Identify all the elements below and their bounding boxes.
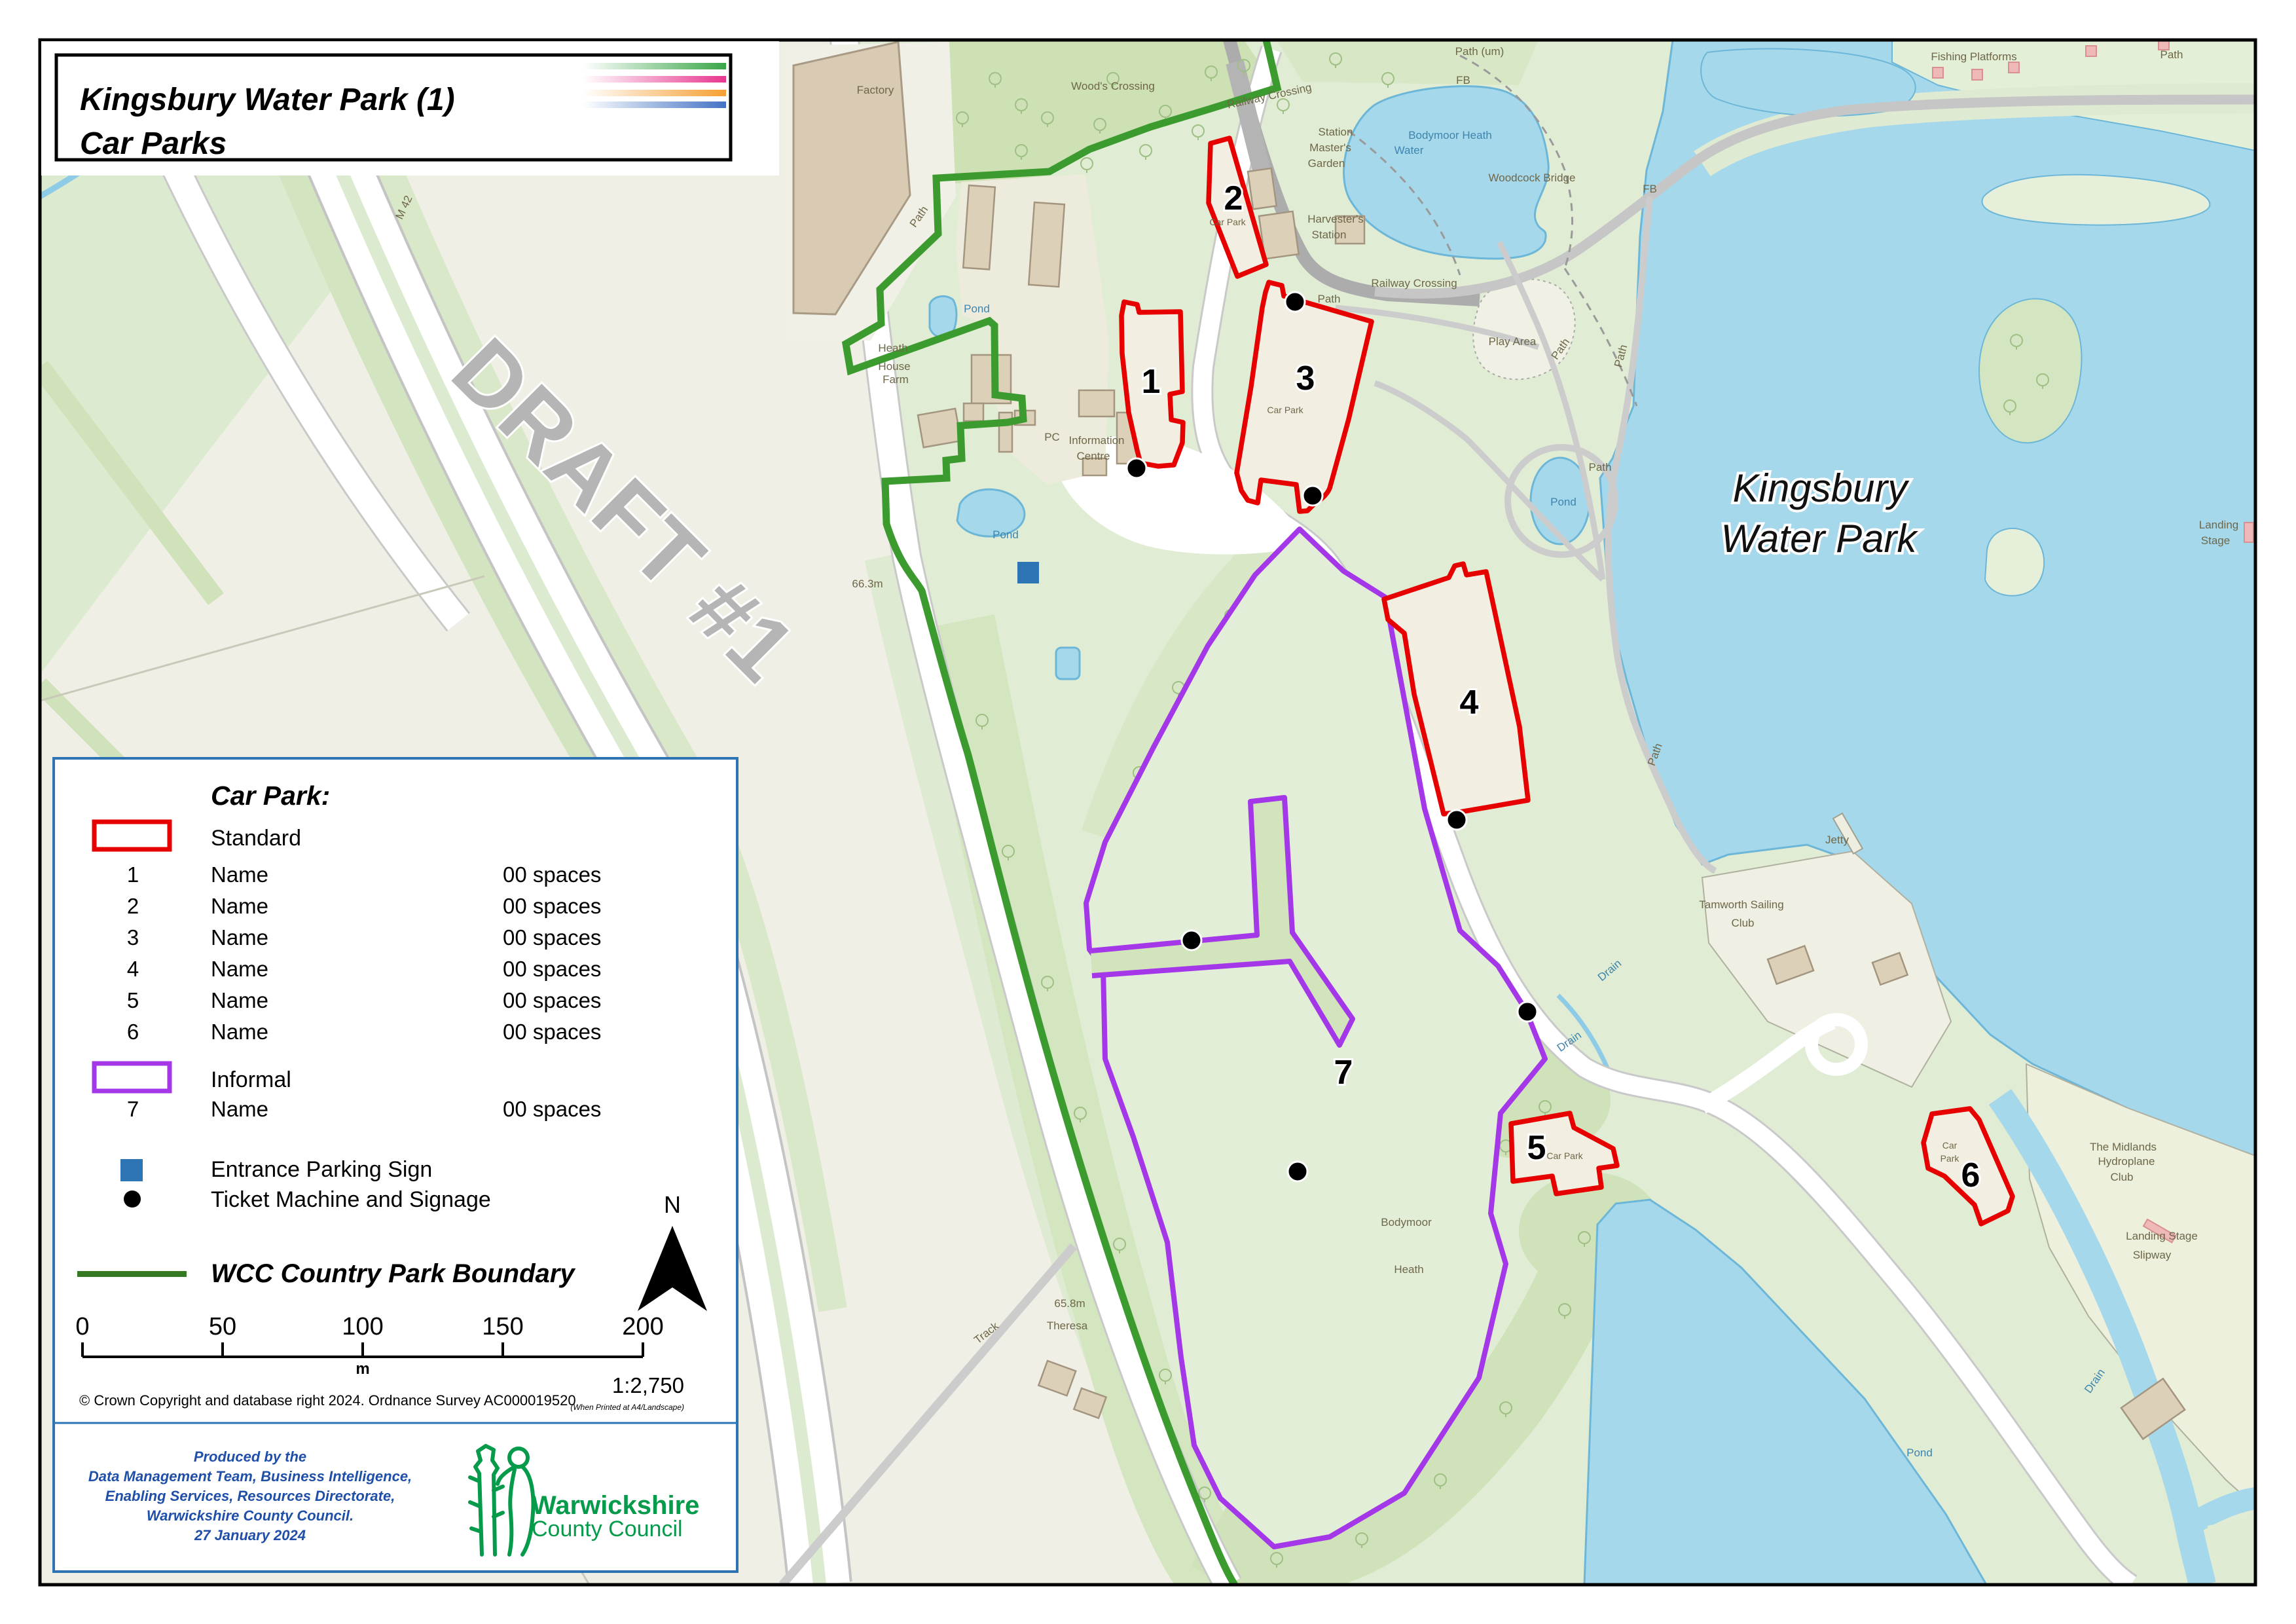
svg-text:00 spaces: 00 spaces <box>503 1020 601 1044</box>
svg-text:Railway Crossing: Railway Crossing <box>1371 277 1457 289</box>
svg-text:Fishing Platforms: Fishing Platforms <box>1931 50 2016 63</box>
svg-text:00 spaces: 00 spaces <box>503 957 601 981</box>
svg-text:00 spaces: 00 spaces <box>503 988 601 1012</box>
svg-text:Name: Name <box>211 894 268 918</box>
svg-text:Enabling Services, Resources D: Enabling Services, Resources Directorate… <box>105 1488 395 1504</box>
svg-text:5: 5 <box>127 988 139 1012</box>
svg-text:Car Park: Car Park <box>1267 405 1303 415</box>
svg-text:Play Area: Play Area <box>1489 335 1537 348</box>
svg-text:Tamworth Sailing: Tamworth Sailing <box>1699 898 1783 911</box>
svg-text:House: House <box>878 360 910 373</box>
svg-text:m: m <box>355 1360 369 1378</box>
svg-text:The Midlands: The Midlands <box>2090 1141 2157 1153</box>
svg-text:Name: Name <box>211 988 268 1012</box>
svg-text:Master's: Master's <box>1309 141 1351 154</box>
svg-text:FB: FB <box>1643 183 1657 195</box>
svg-text:Park: Park <box>1941 1153 1960 1164</box>
svg-text:200: 200 <box>622 1313 663 1340</box>
svg-text:Warwickshire: Warwickshire <box>532 1491 699 1520</box>
svg-text:(When Printed at A4/Landscape): (When Printed at A4/Landscape) <box>570 1403 684 1412</box>
svg-text:Car Parks: Car Parks <box>80 126 227 161</box>
svg-text:Jetty: Jetty <box>1825 834 1849 846</box>
svg-text:Path: Path <box>1318 293 1341 305</box>
svg-text:Heath: Heath <box>1394 1263 1423 1276</box>
svg-text:7: 7 <box>127 1097 139 1121</box>
svg-text:00 spaces: 00 spaces <box>503 925 601 950</box>
svg-text:Woodcock Bridge: Woodcock Bridge <box>1489 172 1576 184</box>
svg-text:Kingsbury: Kingsbury <box>1733 466 1910 510</box>
svg-text:00 spaces: 00 spaces <box>503 862 601 887</box>
svg-text:Pond: Pond <box>1906 1447 1933 1459</box>
svg-text:2: 2 <box>127 894 139 918</box>
svg-text:Car Park:: Car Park: <box>211 781 330 811</box>
svg-text:Car Park: Car Park <box>1546 1151 1583 1161</box>
svg-text:Warwickshire County Council.: Warwickshire County Council. <box>147 1507 354 1524</box>
svg-text:6: 6 <box>1961 1156 1980 1194</box>
svg-text:2: 2 <box>1224 179 1243 217</box>
svg-text:Club: Club <box>2111 1171 2134 1183</box>
svg-text:Path: Path <box>2160 48 2183 61</box>
svg-text:Landing: Landing <box>2199 519 2239 531</box>
svg-text:Path: Path <box>1589 461 1612 473</box>
svg-text:Kingsbury Water Park (1): Kingsbury Water Park (1) <box>80 83 455 117</box>
svg-text:Heath: Heath <box>878 342 907 354</box>
svg-text:Name: Name <box>211 957 268 981</box>
svg-text:Name: Name <box>211 925 268 950</box>
svg-text:N: N <box>664 1191 681 1218</box>
svg-text:Factory: Factory <box>857 84 894 96</box>
svg-text:Name: Name <box>211 1097 268 1121</box>
svg-text:Club: Club <box>1732 917 1755 929</box>
svg-text:Centre: Centre <box>1076 450 1110 462</box>
svg-text:PC: PC <box>1044 431 1060 443</box>
svg-text:Pond: Pond <box>964 303 990 315</box>
svg-text:Car Park: Car Park <box>1209 217 1246 227</box>
svg-text:Path (um): Path (um) <box>1455 45 1504 58</box>
svg-text:Station: Station <box>1312 229 1347 241</box>
svg-text:6: 6 <box>127 1020 139 1044</box>
svg-text:Station: Station <box>1319 126 1353 138</box>
svg-text:© Crown Copyright and database: © Crown Copyright and database right 202… <box>79 1392 576 1409</box>
svg-text:66.3m: 66.3m <box>852 578 883 590</box>
svg-text:Car: Car <box>1942 1140 1958 1151</box>
svg-text:Standard: Standard <box>211 826 301 851</box>
svg-text:00 spaces: 00 spaces <box>503 1097 601 1121</box>
svg-text:Water: Water <box>1394 144 1424 157</box>
svg-text:Water Park: Water Park <box>1721 517 1919 561</box>
svg-text:4: 4 <box>1460 684 1479 722</box>
svg-text:County Council: County Council <box>532 1517 683 1541</box>
svg-text:27 January 2024: 27 January 2024 <box>194 1527 306 1543</box>
svg-text:Name: Name <box>211 862 268 887</box>
svg-text:3: 3 <box>127 925 139 950</box>
svg-text:WCC Country Park Boundary: WCC Country Park Boundary <box>211 1259 575 1288</box>
svg-text:00 spaces: 00 spaces <box>503 894 601 918</box>
svg-text:4: 4 <box>127 957 139 981</box>
svg-text:Bodymoor Heath: Bodymoor Heath <box>1408 129 1492 141</box>
svg-text:Name: Name <box>211 1020 268 1044</box>
svg-text:Slipway: Slipway <box>2133 1249 2172 1261</box>
svg-text:Hydroplane: Hydroplane <box>2098 1155 2155 1168</box>
svg-text:Stage: Stage <box>2201 534 2230 547</box>
svg-text:Garden: Garden <box>1308 157 1345 170</box>
svg-text:0: 0 <box>75 1313 89 1340</box>
svg-text:5: 5 <box>1527 1129 1546 1167</box>
svg-text:Informal: Informal <box>211 1067 291 1092</box>
svg-text:Pond: Pond <box>1550 496 1576 508</box>
svg-text:Theresa: Theresa <box>1047 1319 1088 1332</box>
svg-text:Information: Information <box>1068 434 1124 447</box>
svg-text:Bodymoor: Bodymoor <box>1381 1216 1432 1228</box>
svg-text:3: 3 <box>1296 360 1315 397</box>
svg-text:FB: FB <box>1456 74 1470 86</box>
svg-text:150: 150 <box>482 1313 523 1340</box>
svg-text:Data Management Team, Business: Data Management Team, Business Intellige… <box>88 1468 412 1485</box>
svg-text:1:2,750: 1:2,750 <box>612 1373 684 1397</box>
svg-text:Farm: Farm <box>883 373 909 386</box>
svg-text:1: 1 <box>127 862 139 887</box>
svg-text:7: 7 <box>1334 1054 1353 1092</box>
svg-text:Entrance Parking Sign: Entrance Parking Sign <box>211 1157 432 1182</box>
svg-text:50: 50 <box>209 1313 236 1340</box>
svg-text:65.8m: 65.8m <box>1054 1297 1085 1310</box>
svg-text:Landing Stage: Landing Stage <box>2126 1230 2198 1242</box>
svg-text:Produced by the: Produced by the <box>194 1449 306 1465</box>
svg-text:Pond: Pond <box>993 528 1019 541</box>
svg-text:100: 100 <box>342 1313 383 1340</box>
svg-text:Ticket Machine and Signage: Ticket Machine and Signage <box>211 1187 491 1212</box>
svg-text:1: 1 <box>1142 363 1161 401</box>
svg-text:Wood's Crossing: Wood's Crossing <box>1071 80 1155 92</box>
svg-text:Harvester's: Harvester's <box>1307 213 1363 225</box>
